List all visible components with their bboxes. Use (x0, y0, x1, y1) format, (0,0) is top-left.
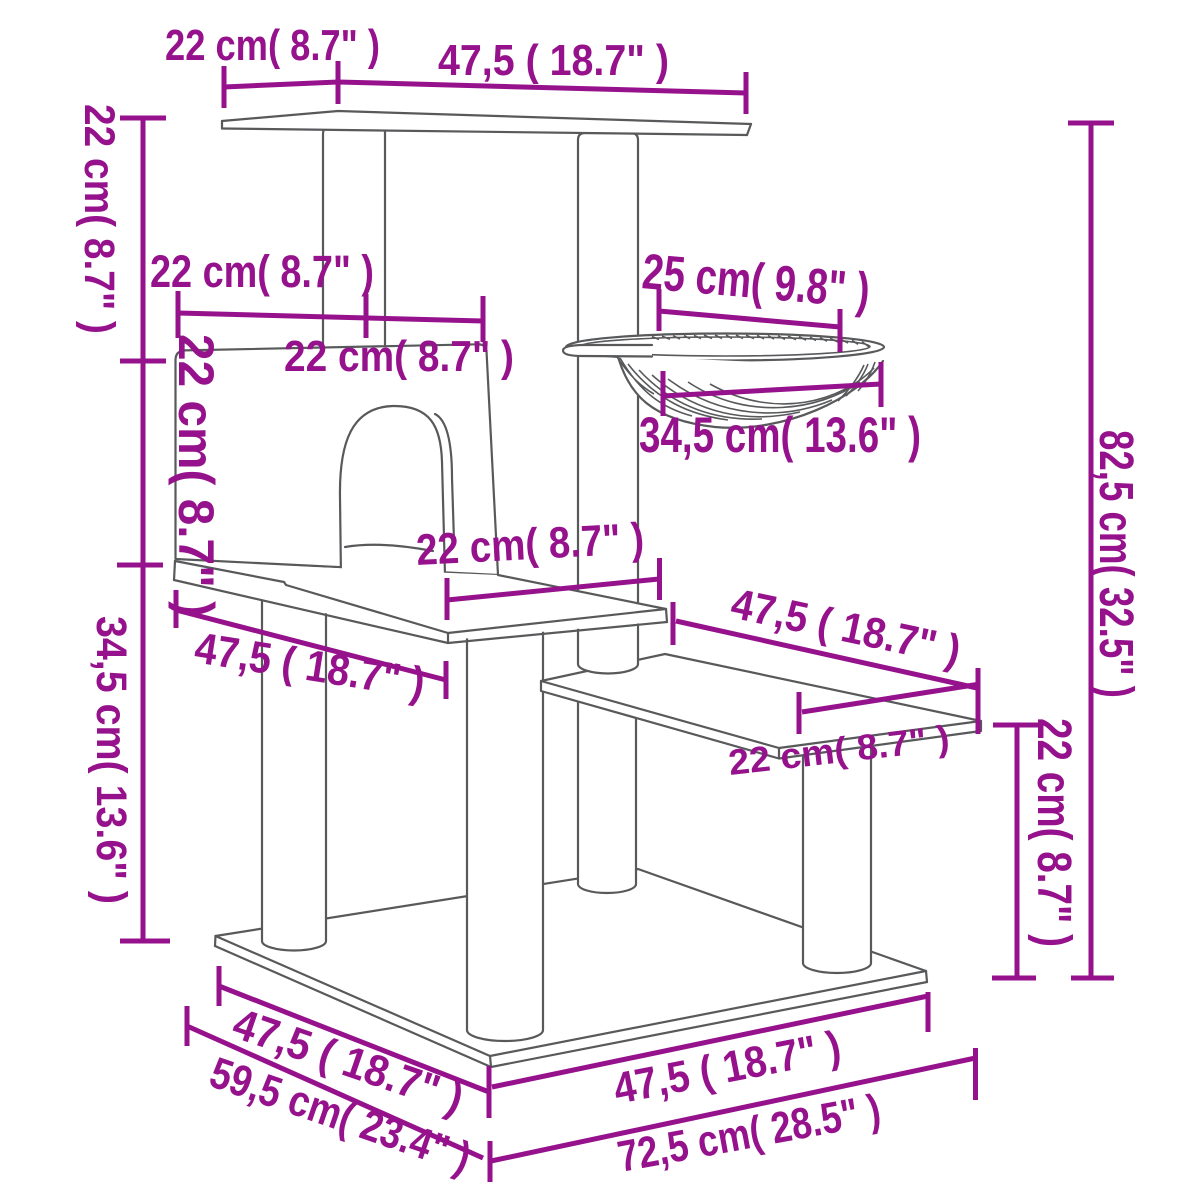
svg-text:47,5 ( 18.7" ): 47,5 ( 18.7" ) (438, 36, 669, 85)
svg-text:34,5 cm( 13.6" ): 34,5 cm( 13.6" ) (639, 407, 921, 463)
svg-text:22 cm( 8.7" ): 22 cm( 8.7" ) (165, 21, 380, 70)
svg-text:22 cm( 8.7" ): 22 cm( 8.7" ) (75, 104, 123, 334)
svg-text:34,5 cm( 13.6" ): 34,5 cm( 13.6" ) (87, 616, 135, 904)
svg-text:22 cm( 8.7" ): 22 cm( 8.7" ) (284, 332, 514, 381)
svg-text:22 cm( 8.7" ): 22 cm( 8.7" ) (168, 334, 224, 617)
svg-text:22 cm( 8.7" ): 22 cm( 8.7" ) (1027, 718, 1080, 947)
svg-text:22 cm( 8.7" ): 22 cm( 8.7" ) (150, 246, 374, 297)
svg-text:82,5 cm( 32.5" ): 82,5 cm( 32.5" ) (1089, 430, 1142, 698)
